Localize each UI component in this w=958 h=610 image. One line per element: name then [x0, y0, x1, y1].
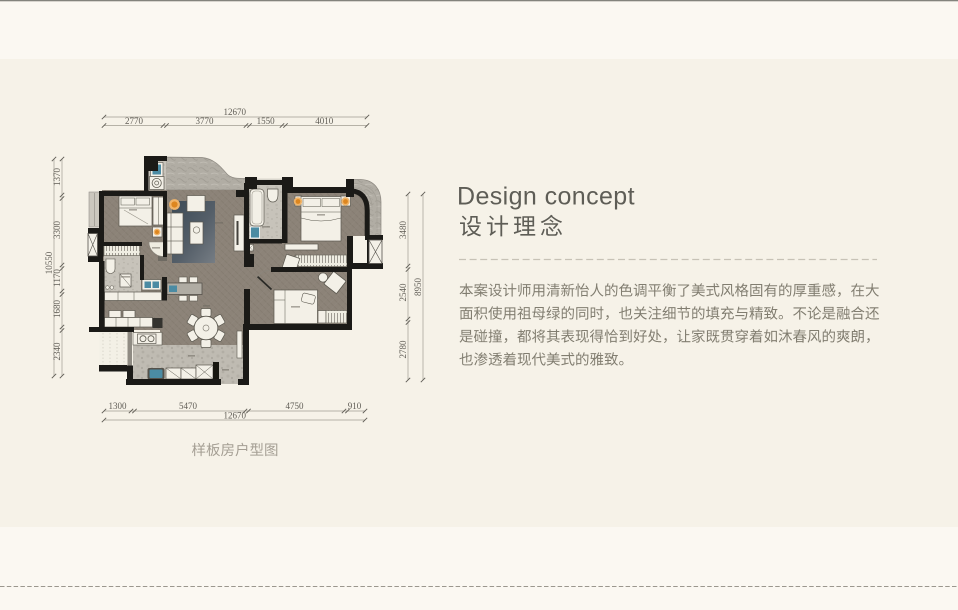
svg-text:Design concept: Design concept [457, 183, 635, 211]
svg-text:3480: 3480 [398, 221, 408, 240]
svg-text:2540: 2540 [398, 283, 408, 302]
svg-text:2770: 2770 [125, 116, 144, 126]
svg-text:4750: 4750 [286, 401, 305, 411]
svg-text:1300: 1300 [109, 401, 128, 411]
svg-text:8950: 8950 [413, 278, 423, 297]
svg-text:910: 910 [348, 401, 362, 411]
svg-text:3770: 3770 [196, 116, 215, 126]
svg-text:4010: 4010 [315, 116, 334, 126]
svg-text:1170: 1170 [52, 269, 62, 287]
svg-text:2780: 2780 [398, 340, 408, 359]
svg-text:1550: 1550 [257, 116, 276, 126]
svg-text:2340: 2340 [52, 342, 62, 361]
svg-text:3300: 3300 [52, 221, 62, 240]
svg-text:1370: 1370 [52, 168, 62, 187]
svg-text:5470: 5470 [179, 401, 198, 411]
svg-text:12670: 12670 [223, 107, 246, 117]
svg-text:12670: 12670 [223, 411, 246, 421]
svg-text:1680: 1680 [52, 300, 62, 319]
